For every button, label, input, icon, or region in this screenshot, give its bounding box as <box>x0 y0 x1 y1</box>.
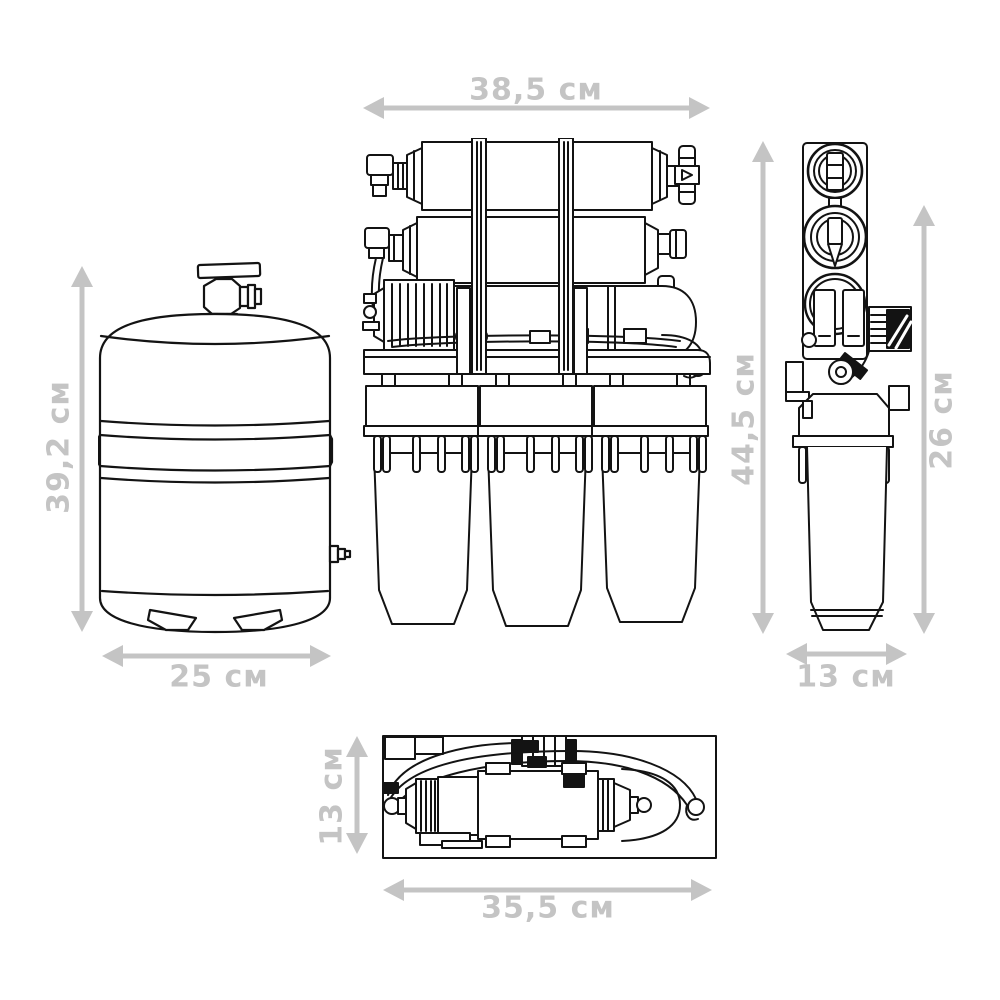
tank-drawing <box>98 258 354 640</box>
tank-width-dimension-label: 25 см <box>169 660 269 695</box>
tank-height-dimension-label: 39,2 см <box>42 380 77 514</box>
front-view-drawing <box>362 138 712 633</box>
side-width-dimension-label: 13 см <box>796 660 896 695</box>
front-width-dimension-label: 38,5 см <box>469 73 603 108</box>
system-height-dimension-label: 44,5 см <box>727 352 762 486</box>
side-view-drawing <box>785 140 915 650</box>
top-depth-dimension-label: 13 см <box>315 746 350 846</box>
top-width-dimension-label: 35,5 см <box>481 891 615 926</box>
side-height-dimension-label: 26 см <box>925 370 960 470</box>
top-view-drawing <box>382 735 717 860</box>
dimension-diagram: 38,5 см 39,2 см 25 см 44,5 см 26 см 13 с… <box>0 0 1000 1000</box>
